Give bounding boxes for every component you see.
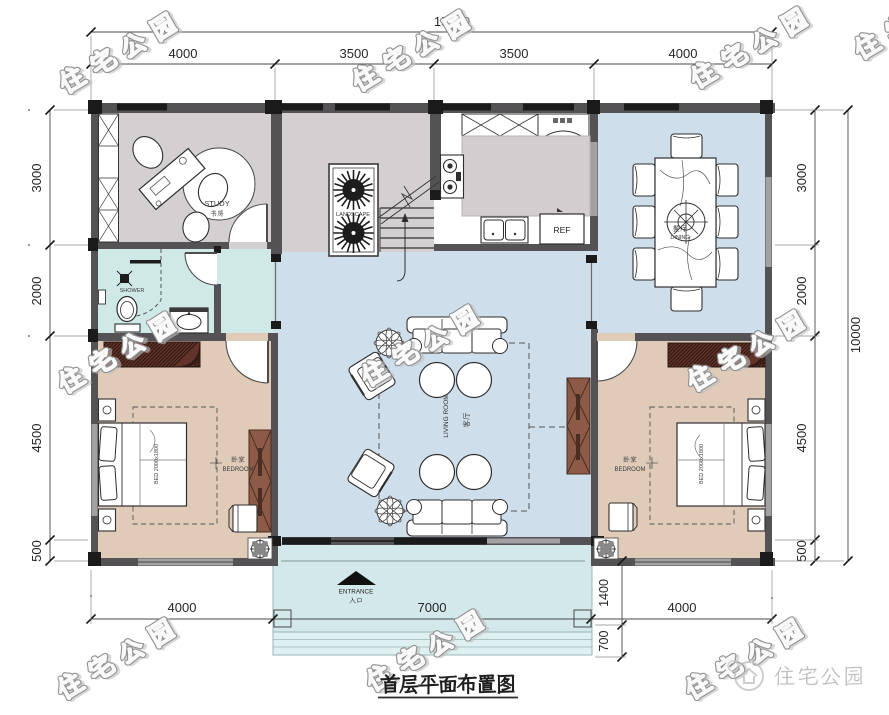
svg-text:4500: 4500 [794,424,809,453]
svg-text:500: 500 [794,540,809,562]
svg-text:BED 2000x1800: BED 2000x1800 [154,444,160,484]
svg-text:2000: 2000 [29,277,44,306]
svg-text:4500: 4500 [29,424,44,453]
svg-text:700: 700 [597,631,611,652]
svg-text:2000: 2000 [794,277,809,306]
svg-text:3500: 3500 [500,46,529,61]
svg-text:SHOWER: SHOWER [120,288,145,294]
svg-text:10000: 10000 [848,317,863,353]
svg-text:LIVING ROOM: LIVING ROOM [443,394,450,437]
svg-text:7000: 7000 [418,600,447,615]
svg-text:3500: 3500 [340,46,369,61]
svg-text:3000: 3000 [794,164,809,193]
svg-text:BEDROOM: BEDROOM [614,467,645,473]
svg-text:STUDY: STUDY [204,199,229,208]
svg-text:BED 2000x1800: BED 2000x1800 [699,444,705,484]
svg-text:REF: REF [554,225,571,235]
svg-text:4000: 4000 [669,46,698,61]
svg-text:1400: 1400 [597,579,611,607]
svg-text:4000: 4000 [168,600,197,615]
svg-text:LANDSCAPE: LANDSCAPE [336,212,370,218]
svg-text:DINING: DINING [670,235,689,241]
svg-text:ENTRANCE: ENTRANCE [339,589,374,596]
svg-text:500: 500 [29,540,44,562]
svg-text:3000: 3000 [29,164,44,193]
svg-text:4000: 4000 [169,46,198,61]
svg-text:BEDROOM: BEDROOM [222,467,253,473]
svg-text:4000: 4000 [668,600,697,615]
